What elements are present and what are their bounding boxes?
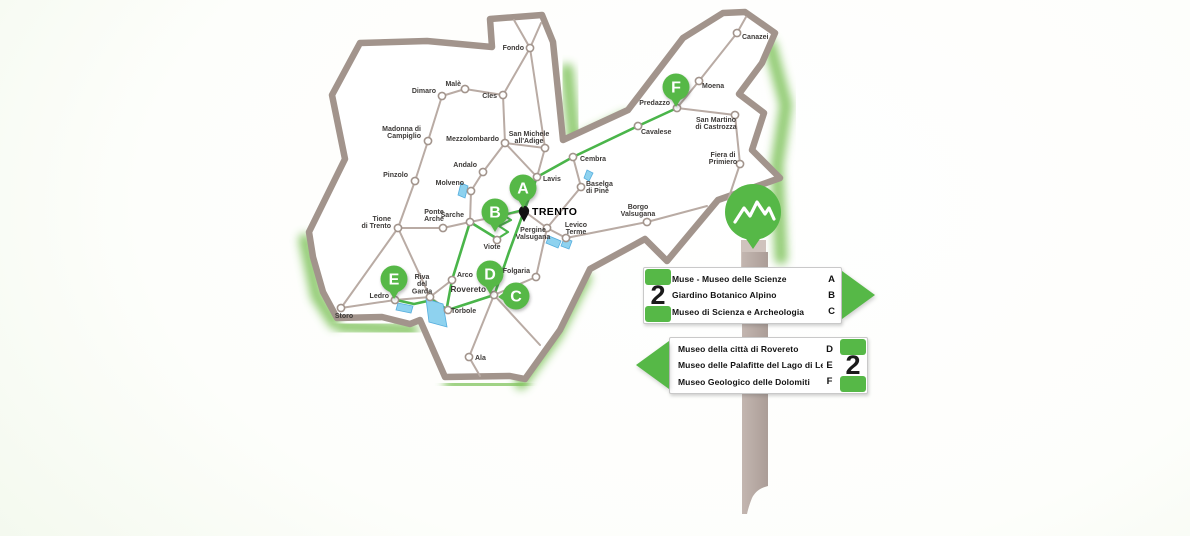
town-node (501, 139, 508, 146)
sign-entries: Muse - Museo delle ScienzeAGiardino Bota… (672, 268, 841, 323)
town-node (733, 29, 740, 36)
town-label: Ledro (370, 293, 389, 300)
town-node (439, 224, 446, 231)
sign-entry-label: Muse - Museo delle Scienze (672, 274, 825, 284)
green-tab (645, 306, 671, 322)
town-node (533, 173, 540, 180)
town-label: Folgaria (503, 268, 530, 275)
town-node (411, 177, 418, 184)
town-label: LevicoTerme (565, 222, 587, 236)
sign-entry: Museo delle Palafitte del Lago di LedroE (678, 357, 836, 373)
sign-right: 2 Muse - Museo delle ScienzeAGiardino Bo… (643, 267, 842, 324)
town-node (438, 92, 445, 99)
town-node (736, 160, 743, 167)
town-label: Cembra (580, 156, 606, 163)
sign-entry: Museo di Scienza e ArcheologiaC (672, 304, 838, 320)
town-label: Madonna diCampiglio (382, 126, 421, 140)
sign-entries: Museo della città di RoveretoDMuseo dell… (670, 338, 839, 393)
sign-entry-letter: B (825, 290, 838, 301)
sign-left: Museo della città di RoveretoDMuseo dell… (669, 337, 868, 394)
town-node (541, 144, 548, 151)
town-label: Fondo (503, 45, 524, 52)
town-node (490, 291, 497, 298)
town-label: Predazzo (639, 100, 670, 107)
sign-entry-letter: F (823, 376, 836, 387)
pin-letter: E (389, 272, 400, 289)
sign-entry-label: Museo delle Palafitte del Lago di Ledro (678, 360, 823, 370)
town-label: PergineValsugana (516, 227, 551, 241)
sign-number-panel: 2 (644, 268, 672, 323)
town-label: Storo (335, 313, 353, 320)
sign-entry: Giardino Botanico AlpinoB (672, 287, 838, 303)
town-label: Cles (482, 93, 497, 100)
town-label: Molveno (436, 180, 464, 187)
sign-entry-letter: D (823, 344, 836, 355)
green-tab (840, 339, 866, 355)
town-node (526, 44, 533, 51)
sign-entry-label: Museo della città di Rovereto (678, 344, 823, 354)
town-node (461, 85, 468, 92)
town-label: Rovereto (451, 285, 487, 294)
pin-letter: F (671, 80, 681, 97)
trentino-museums-infographic: FondoMalèDimaroClesMadonna diCampiglioMe… (0, 0, 1190, 536)
arrow-right-icon (842, 271, 875, 319)
town-label: Cavalese (641, 129, 671, 136)
town-node (499, 91, 506, 98)
town-label: Dimaro (412, 88, 436, 95)
town-node (577, 183, 584, 190)
town-label: Torbole (451, 308, 476, 315)
pin-letter: C (510, 289, 522, 306)
arrow-left-icon (636, 341, 669, 389)
sign-number-panel: 2 (839, 338, 867, 393)
sign-entry-label: Museo di Scienza e Archeologia (672, 307, 825, 317)
town-label: Mezzolombardo (446, 136, 499, 143)
town-node (493, 236, 500, 243)
sign-entry-letter: C (825, 306, 838, 317)
sign-entry-label: Giardino Botanico Alpino (672, 290, 825, 300)
town-label: Lavis (543, 176, 561, 183)
pin-letter: D (484, 267, 496, 284)
town-node (479, 168, 486, 175)
town-label: Arco (457, 272, 473, 279)
sign-entry: Muse - Museo delle ScienzeA (672, 271, 838, 287)
town-label: San Micheleall'Adige (509, 131, 550, 145)
town-node (532, 273, 539, 280)
town-node (391, 296, 398, 303)
sign-entry-letter: E (823, 360, 836, 371)
town-node (337, 304, 344, 311)
town-label: Fiera diPrimiero (709, 152, 737, 166)
sign-entry: Museo della città di RoveretoD (678, 341, 836, 357)
capital-label: TRENTO (532, 206, 577, 218)
town-label: Moena (702, 83, 724, 90)
town-node (643, 218, 650, 225)
sign-entry: Museo Geologico delle DolomitiF (678, 374, 836, 390)
town-label: Baselgadi Pinè (586, 181, 613, 195)
sign-entry-label: Museo Geologico delle Dolomiti (678, 377, 823, 387)
town-node (673, 104, 680, 111)
town-label: Canazei (742, 34, 769, 41)
sign-number: 2 (845, 352, 860, 379)
pin-letter: A (517, 181, 529, 198)
town-label: San Martinodi Castrozza (695, 117, 736, 131)
town-node (467, 187, 474, 194)
town-label: Malè (445, 81, 461, 88)
town-label: Ala (475, 355, 486, 362)
green-tab (840, 376, 866, 392)
pin-letter: B (489, 205, 501, 222)
signpost-ornament (725, 184, 781, 249)
town-label: Viote (484, 244, 501, 251)
town-node (569, 153, 576, 160)
town-label: Pinzolo (383, 172, 408, 179)
sign-entry-letter: A (825, 274, 838, 285)
town-node (448, 276, 455, 283)
town-node (394, 224, 401, 231)
green-tab (645, 269, 671, 285)
town-node (465, 353, 472, 360)
town-node (466, 218, 473, 225)
sign-number: 2 (650, 282, 665, 309)
town-label: Sarche (441, 212, 464, 219)
town-node (424, 137, 431, 144)
trentino-map: FondoMalèDimaroClesMadonna diCampiglioMe… (0, 0, 1190, 536)
town-label: Andalo (453, 162, 477, 169)
